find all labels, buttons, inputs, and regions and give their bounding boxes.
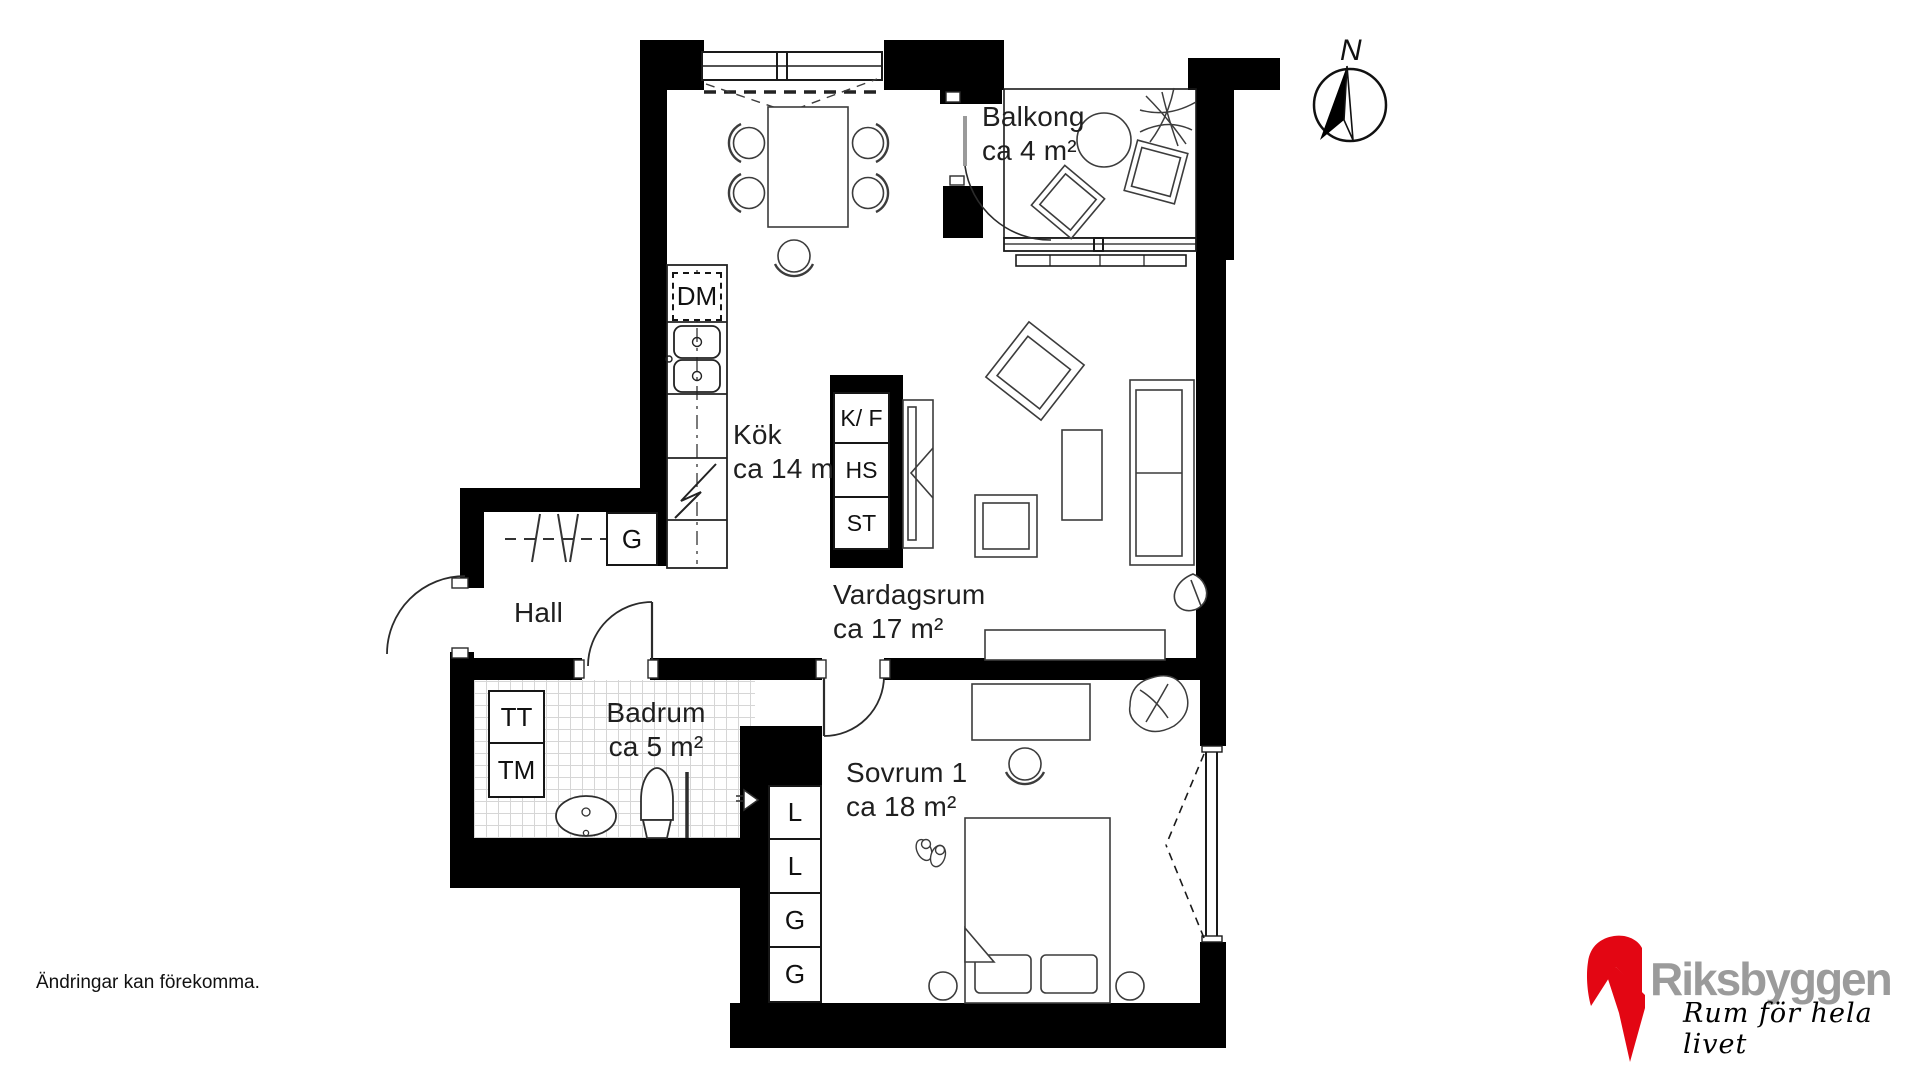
armchair (986, 322, 1084, 420)
pantry-box: ST (833, 496, 890, 550)
entry-door (387, 576, 468, 658)
dishwasher-box: DM (672, 272, 722, 321)
floor-plan-page: Balkong ca 4 m² Kök ca 14 m² Hall Badrum… (0, 0, 1920, 1080)
room-name: Kök (733, 419, 782, 450)
room-area: ca 18 m² (846, 790, 967, 824)
dining-chair (729, 174, 765, 212)
dining-chair (853, 174, 889, 212)
fixture-label: G (622, 524, 642, 555)
fixture-label: HS (846, 457, 878, 484)
balcony-chair (1031, 165, 1104, 238)
closet-box: L (768, 838, 822, 894)
hall-wardrobe-box: G (606, 512, 658, 566)
dining-set (706, 79, 888, 276)
room-name: Hall (514, 597, 563, 628)
room-area: ca 4 m² (982, 134, 1085, 168)
bathroom-fixtures (556, 768, 758, 838)
room-label-badrum: Badrum ca 5 m² (590, 696, 722, 764)
plant-icon (1130, 676, 1188, 732)
dryer-box: TT (488, 690, 545, 744)
room-name: Vardagsrum (833, 579, 985, 610)
bedside-table (1116, 972, 1144, 1000)
tv-bench (903, 400, 933, 548)
closet-box: G (768, 892, 822, 948)
plant-icon (1174, 574, 1206, 611)
fridge-freezer-box: K/ F (833, 392, 890, 444)
room-name: Badrum (606, 697, 705, 728)
slippers-icon (913, 837, 948, 869)
floor-plan-drawing (0, 0, 1920, 1080)
living-room-window (1004, 238, 1196, 266)
sofa (1130, 380, 1194, 565)
room-name: Balkong (982, 101, 1085, 132)
disclaimer-text: Ändringar kan förekomma. (36, 972, 260, 994)
room-label-vardagsrum: Vardagsrum ca 17 m² (833, 578, 985, 646)
fixture-label: L (788, 851, 802, 882)
balcony-chair (1124, 140, 1188, 204)
fixture-label: TM (498, 755, 536, 786)
closet-box: L (768, 785, 822, 840)
fixture-label: DM (677, 281, 717, 312)
kitchen-window (702, 52, 882, 92)
bathroom-sink (556, 796, 616, 836)
balcony-table (1077, 113, 1131, 167)
fixture-label: G (785, 959, 805, 990)
bedside-table (929, 972, 957, 1000)
room-label-hall: Hall (514, 596, 563, 630)
fixture-label: TT (501, 702, 533, 733)
room-label-kok: Kök ca 14 m² (733, 418, 844, 486)
fixture-label: K/ F (840, 405, 882, 432)
bathroom-door (574, 602, 658, 678)
bedroom-door (816, 660, 890, 736)
bedroom-window (1166, 746, 1222, 942)
fixture-label: G (785, 905, 805, 936)
room-area: ca 14 m² (733, 452, 844, 486)
fixture-label: L (788, 797, 802, 828)
coat-rack (505, 514, 608, 562)
washer-box: TM (488, 742, 545, 798)
room-label-balkong: Balkong ca 4 m² (982, 100, 1085, 168)
cleaning-cabinet-box: HS (833, 442, 890, 498)
side-table (975, 495, 1037, 557)
brand-tagline: Rum för hela livet (1683, 998, 1920, 1060)
bedroom-furniture (913, 676, 1188, 1003)
desk-chair (1006, 748, 1044, 784)
closet-box: G (768, 946, 822, 1003)
north-compass-icon (1314, 66, 1386, 141)
dining-chair (853, 124, 889, 162)
toilet (641, 768, 673, 838)
north-label: N (1340, 34, 1362, 68)
fixture-label: ST (847, 510, 876, 537)
room-area: ca 5 m² (590, 730, 722, 764)
sideboard (985, 630, 1165, 660)
room-name: Sovrum 1 (846, 757, 967, 788)
plant-icon (1140, 88, 1196, 146)
room-area: ca 17 m² (833, 612, 985, 646)
dining-chair (729, 124, 765, 162)
room-label-sovrum1: Sovrum 1 ca 18 m² (846, 756, 967, 824)
bed (965, 818, 1110, 1003)
riksbyggen-logo-icon (1587, 936, 1645, 1062)
dining-chair (775, 240, 813, 276)
coffee-table (1062, 430, 1102, 520)
desk (972, 684, 1090, 740)
